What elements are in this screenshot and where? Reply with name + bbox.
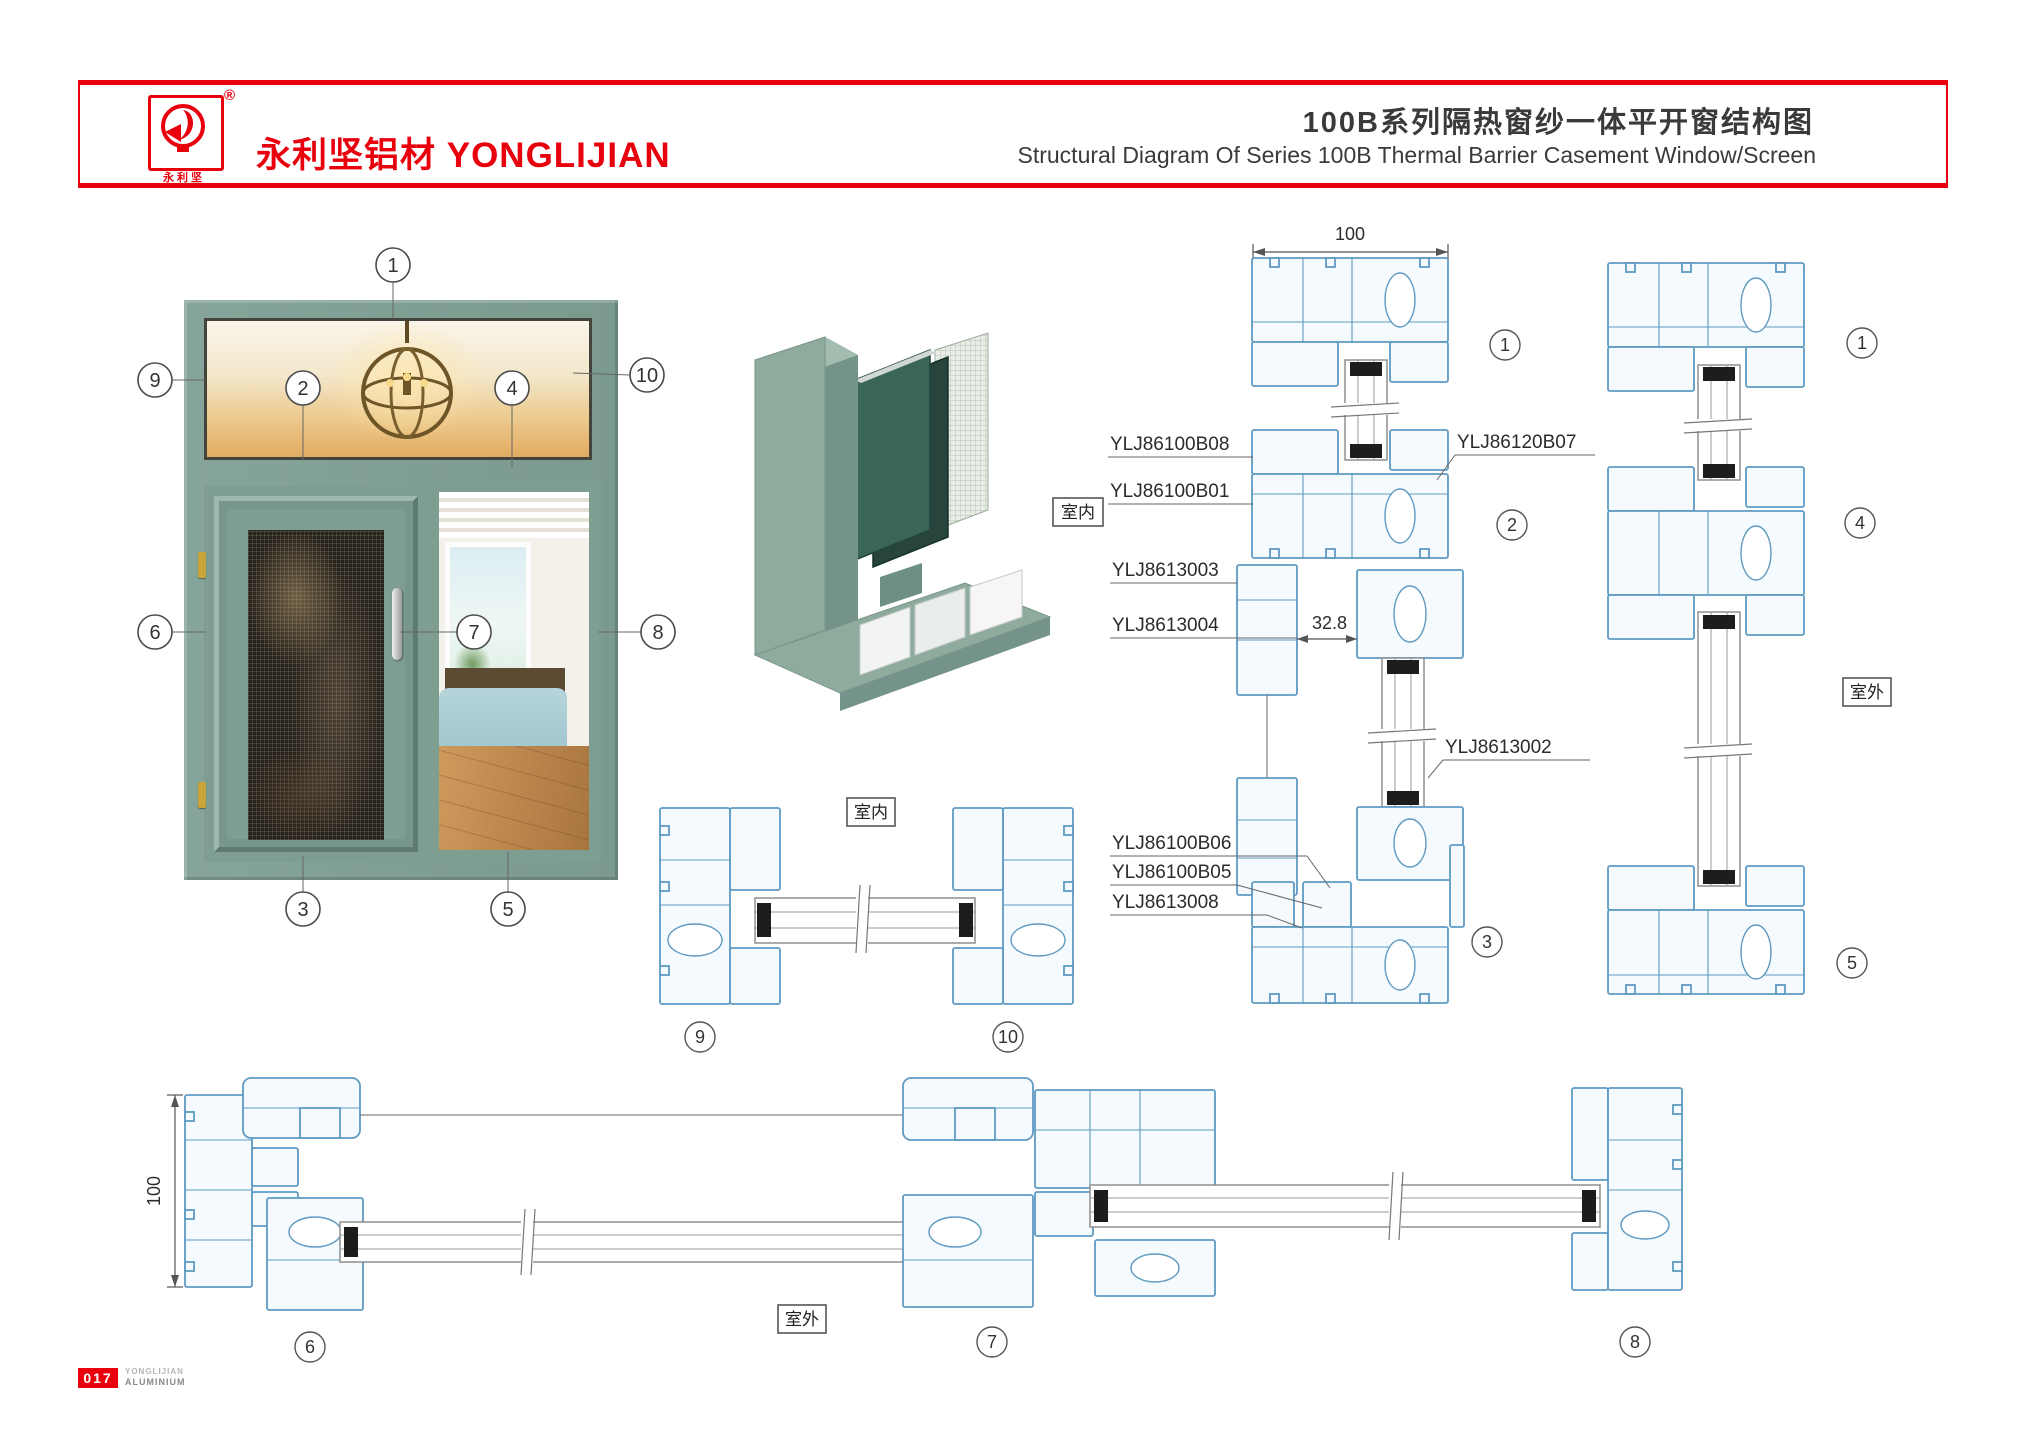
svg-text:5: 5 — [502, 899, 513, 921]
technical-diagram: 1 9 2 4 10 6 7 8 3 5 100 — [0, 0, 2027, 1455]
svg-text:5: 5 — [1847, 953, 1857, 973]
horizontal-section-middle: 室内 9 10 — [660, 798, 1073, 1052]
profile-3d-render — [755, 333, 1050, 711]
svg-text:1: 1 — [1857, 333, 1867, 353]
svg-text:1: 1 — [1500, 335, 1510, 355]
callout-4: 4 — [495, 371, 529, 405]
section-callout-6: 6 — [295, 1332, 325, 1362]
label-ylj86100b06: YLJ86100B06 — [1112, 833, 1231, 854]
svg-text:10: 10 — [636, 365, 658, 387]
svg-text:8: 8 — [652, 622, 663, 644]
section-callout-2-center: 2 — [1497, 510, 1527, 540]
callout-3: 3 — [286, 892, 320, 926]
glass-horizontal-middle — [755, 885, 975, 953]
label-ylj8613003: YLJ8613003 — [1112, 560, 1219, 581]
catalog-page: ® 永利坚 永利坚铝材 YONGLIJIAN 100B系列隔热窗纱一体平开窗结构… — [0, 0, 2027, 1455]
svg-text:4: 4 — [1855, 513, 1865, 533]
section-callout-3-center: 3 — [1472, 927, 1502, 957]
callout-1: 1 — [376, 248, 410, 282]
callout-6: 6 — [138, 615, 172, 649]
outdoor-box-1: 室外 — [1843, 678, 1891, 706]
footer-brand-line2: ALUMINIUM — [125, 1377, 186, 1387]
section-callout-9: 9 — [685, 1022, 715, 1052]
svg-text:4: 4 — [506, 378, 517, 400]
page-number: 017 — [78, 1368, 118, 1388]
footer-brand-line1: YONGLIJIAN — [125, 1367, 184, 1376]
section-callout-5-right: 5 — [1837, 948, 1867, 978]
svg-text:3: 3 — [297, 899, 308, 921]
svg-text:10: 10 — [998, 1027, 1018, 1047]
glass-right-2 — [1684, 612, 1752, 886]
callout-5: 5 — [491, 892, 525, 926]
callout-2: 2 — [286, 371, 320, 405]
callout-8: 8 — [641, 615, 675, 649]
label-ylj8613004: YLJ8613004 — [1112, 615, 1219, 636]
dim-left-height: 100 — [144, 1176, 164, 1206]
bottom-left-assembly — [185, 1078, 363, 1310]
dim-screen-gap: 32.8 — [1312, 613, 1347, 633]
callout-10: 10 — [630, 358, 664, 392]
callout-9: 9 — [138, 363, 172, 397]
section-callout-7: 7 — [977, 1327, 1007, 1357]
indoor-box-2: 室内 — [847, 798, 895, 826]
svg-text:9: 9 — [149, 370, 160, 392]
callout-7: 7 — [457, 615, 491, 649]
glass-unit-2 — [1368, 658, 1436, 807]
vertical-section-column-center: 100 — [1053, 224, 1595, 1003]
section-callout-1-right: 1 — [1847, 328, 1877, 358]
label-ylj86100b01: YLJ86100B01 — [1110, 481, 1229, 502]
label-ylj86100b08: YLJ86100B08 — [1110, 434, 1229, 455]
section-callout-4-right: 4 — [1845, 508, 1875, 538]
svg-text:7: 7 — [987, 1332, 997, 1352]
outdoor-box-2: 室外 — [778, 1305, 826, 1333]
svg-text:6: 6 — [149, 622, 160, 644]
section-callout-8: 8 — [1620, 1327, 1650, 1357]
horizontal-section-bottom: 100 — [144, 1078, 1682, 1362]
glass-unit-1 — [1331, 360, 1399, 460]
label-ylj8613002: YLJ8613002 — [1445, 737, 1552, 758]
svg-text:3: 3 — [1482, 932, 1492, 952]
svg-text:室内: 室内 — [1061, 503, 1095, 522]
label-ylj86120b07: YLJ86120B07 — [1457, 432, 1576, 453]
svg-text:8: 8 — [1630, 1332, 1640, 1352]
indoor-box-1: 室内 — [1053, 498, 1103, 526]
label-ylj8613008: YLJ8613008 — [1112, 892, 1219, 913]
svg-text:室内: 室内 — [854, 803, 888, 822]
label-ylj86100b05: YLJ86100B05 — [1112, 862, 1231, 883]
svg-text:6: 6 — [305, 1337, 315, 1357]
glass-bottom-left — [340, 1209, 950, 1275]
section-callout-1-center: 1 — [1490, 330, 1520, 360]
svg-text:7: 7 — [468, 622, 479, 644]
svg-text:2: 2 — [1507, 515, 1517, 535]
svg-text:室外: 室外 — [1850, 683, 1884, 702]
svg-text:1: 1 — [387, 255, 398, 277]
dim-top-width: 100 — [1335, 224, 1365, 244]
window-callouts: 1 9 2 4 10 6 7 8 3 5 — [138, 248, 675, 926]
vertical-section-column-right: 室外 1 4 5 — [1608, 263, 1891, 994]
svg-text:室外: 室外 — [785, 1310, 819, 1329]
section-callout-10: 10 — [993, 1022, 1023, 1052]
svg-text:9: 9 — [695, 1027, 705, 1047]
svg-text:2: 2 — [297, 378, 308, 400]
